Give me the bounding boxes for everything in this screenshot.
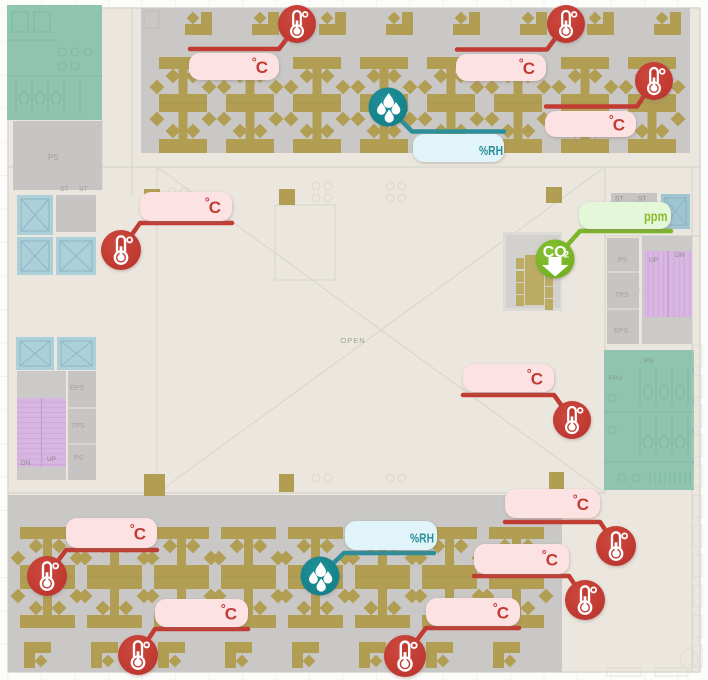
svg-text:EPS: EPS	[614, 328, 628, 335]
svg-text:OPEN: OPEN	[340, 336, 365, 345]
svg-text:DN: DN	[675, 252, 685, 259]
svg-text:ST: ST	[615, 196, 623, 203]
svg-text:C: C	[546, 551, 558, 570]
svg-text:C: C	[134, 525, 146, 544]
svg-text:DN: DN	[21, 460, 31, 467]
svg-text:PS: PS	[644, 358, 654, 365]
svg-text:%RH: %RH	[479, 143, 503, 158]
svg-text:C: C	[209, 198, 221, 217]
svg-text:C: C	[577, 495, 589, 514]
svg-text:C: C	[523, 59, 535, 78]
svg-text:TPS: TPS	[615, 292, 629, 299]
svg-text:ppm: ppm	[644, 209, 668, 224]
svg-text:C: C	[497, 604, 509, 623]
svg-text:TPS: TPS	[71, 423, 85, 430]
svg-text:C: C	[225, 605, 237, 624]
svg-text:PS: PS	[74, 455, 84, 462]
svg-text:PS: PS	[618, 257, 628, 264]
svg-text:C: C	[531, 370, 543, 389]
svg-text:ST: ST	[638, 196, 646, 203]
svg-text:PS: PS	[48, 153, 59, 162]
svg-text:UP: UP	[649, 257, 658, 264]
svg-text:C: C	[613, 116, 625, 135]
svg-text:EPS: EPS	[70, 385, 84, 392]
svg-text:ST: ST	[60, 186, 70, 193]
svg-text:UP: UP	[47, 456, 56, 463]
svg-text:%RH: %RH	[410, 531, 434, 546]
svg-text:ST: ST	[79, 186, 89, 193]
svg-text:FPU: FPU	[609, 375, 622, 382]
svg-text:C: C	[256, 58, 268, 77]
